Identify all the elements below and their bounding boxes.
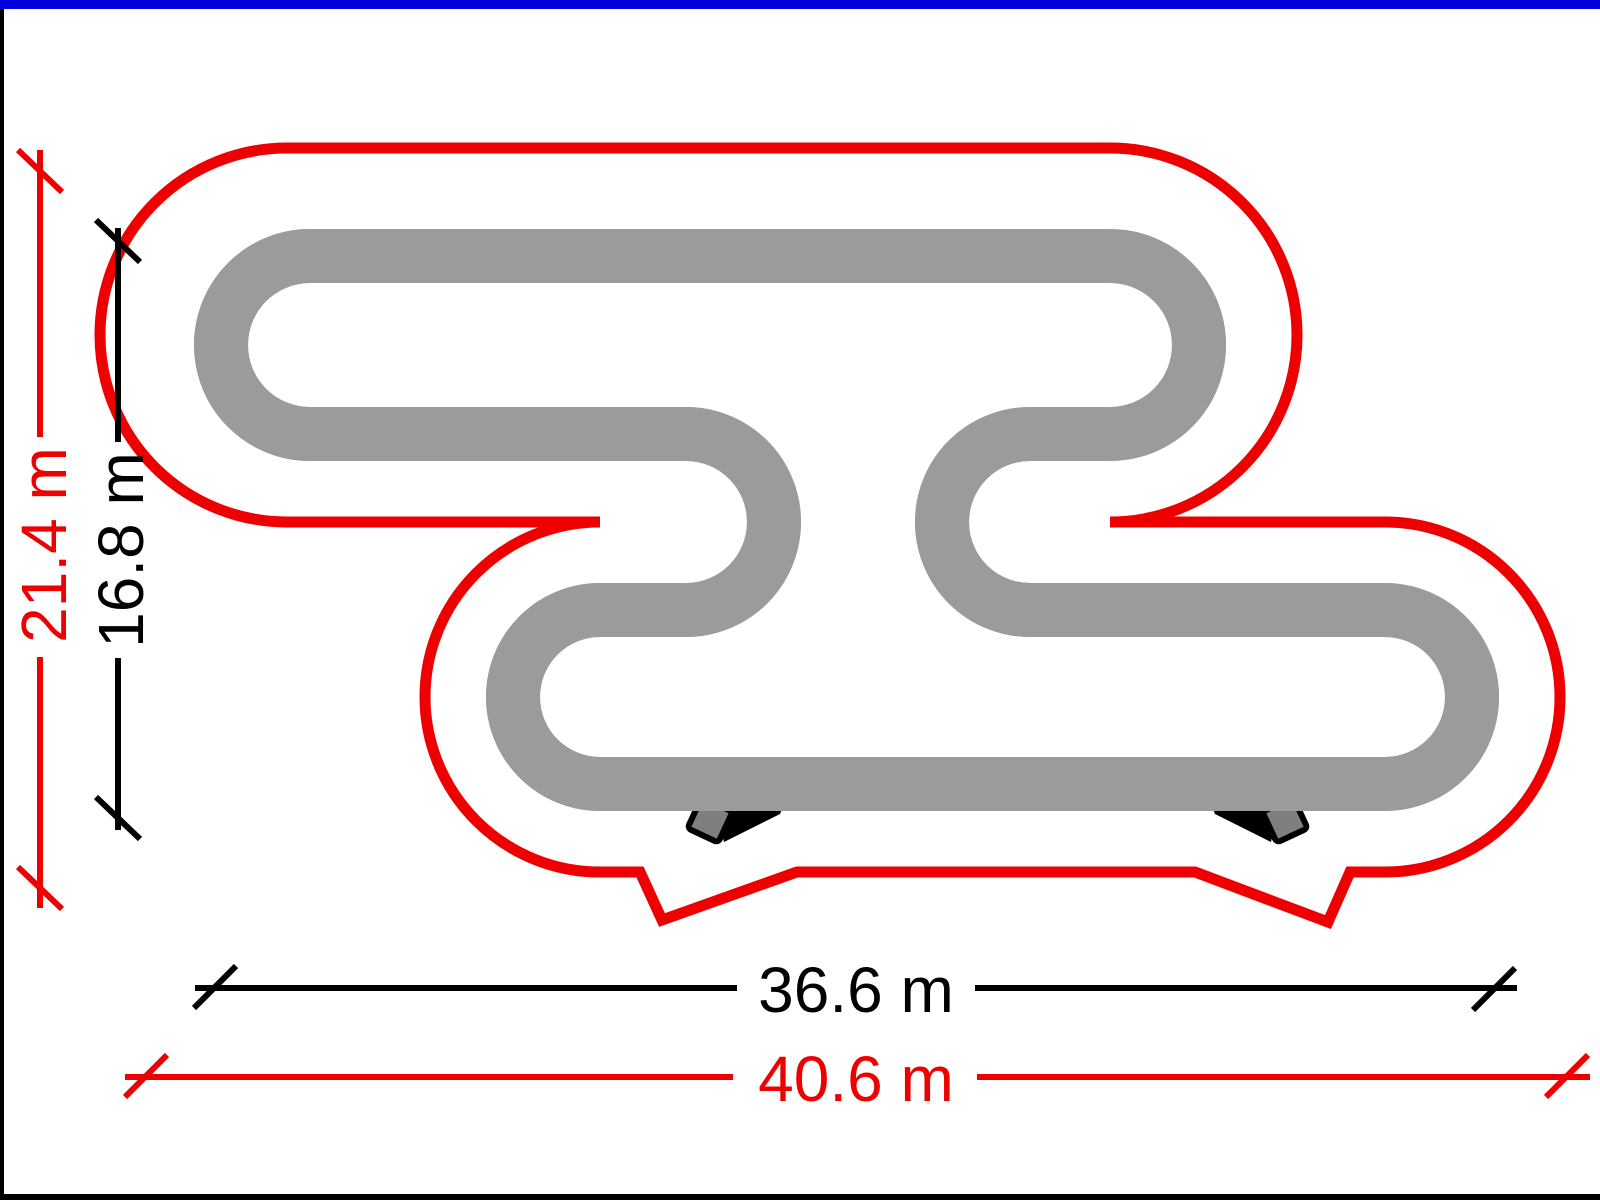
dimension-area-height: 21.4 m [8,150,80,909]
track-width-label: 36.6 m [758,954,954,1026]
area-height-label: 21.4 m [8,447,80,643]
dimension-track-width: 36.6 m [194,954,1517,1026]
track-plan-page: 21.4 m 16.8 m 36.6 m 40.6 m [0,0,1600,1200]
window-bottom-border [0,1194,1600,1200]
track-plan-diagram: 21.4 m 16.8 m 36.6 m 40.6 m [0,0,1600,1200]
track-height-label: 16.8 m [85,452,157,648]
area-width-label: 40.6 m [758,1043,954,1115]
dimension-area-width: 40.6 m [125,1043,1590,1115]
